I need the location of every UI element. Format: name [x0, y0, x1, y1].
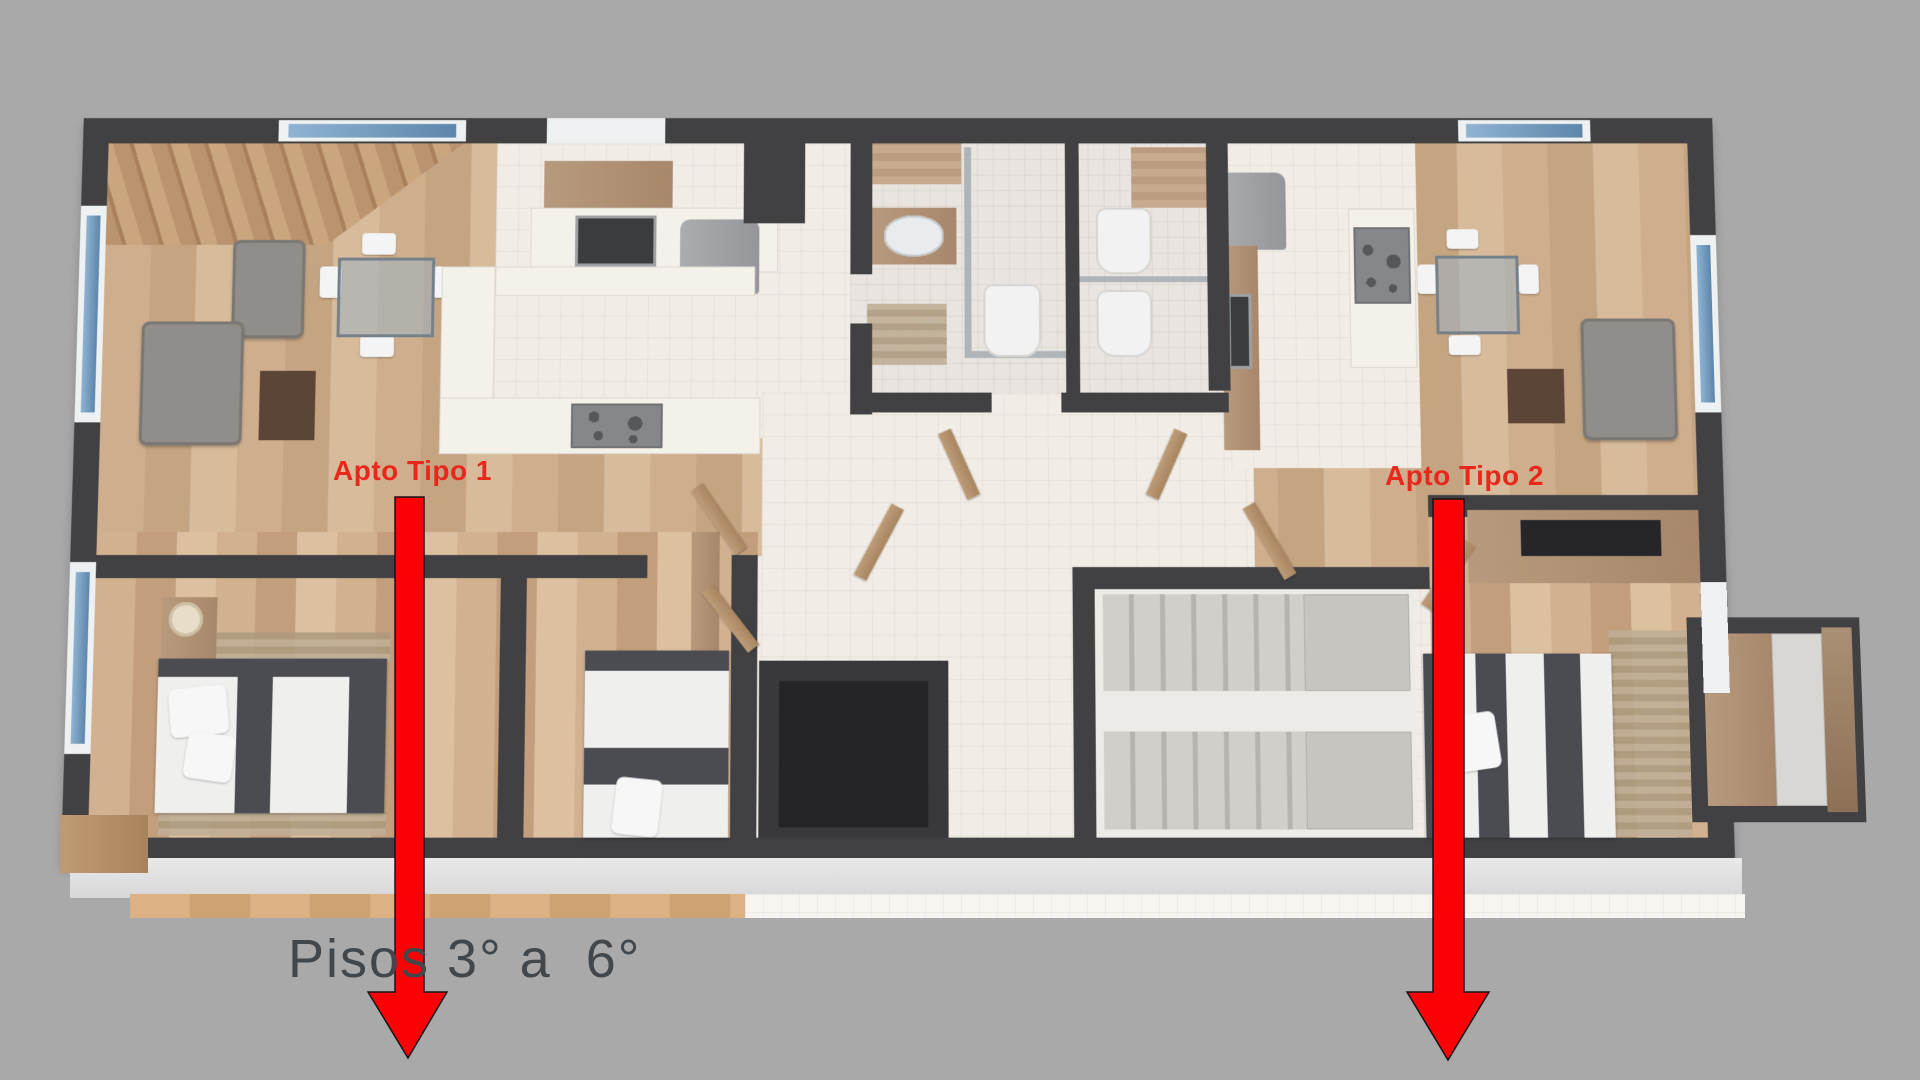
- apartment2-label: Apto Tipo 2: [1385, 460, 1544, 492]
- down-arrow-apt2: [1407, 499, 1489, 1060]
- floors-label: Pisos 3° a 6°: [288, 928, 641, 990]
- apartment1-label: Apto Tipo 1: [333, 455, 492, 487]
- arrow-overlay: [0, 0, 1920, 1080]
- scene: { "page": { "background_color": "#a9a9a9…: [0, 0, 1920, 1080]
